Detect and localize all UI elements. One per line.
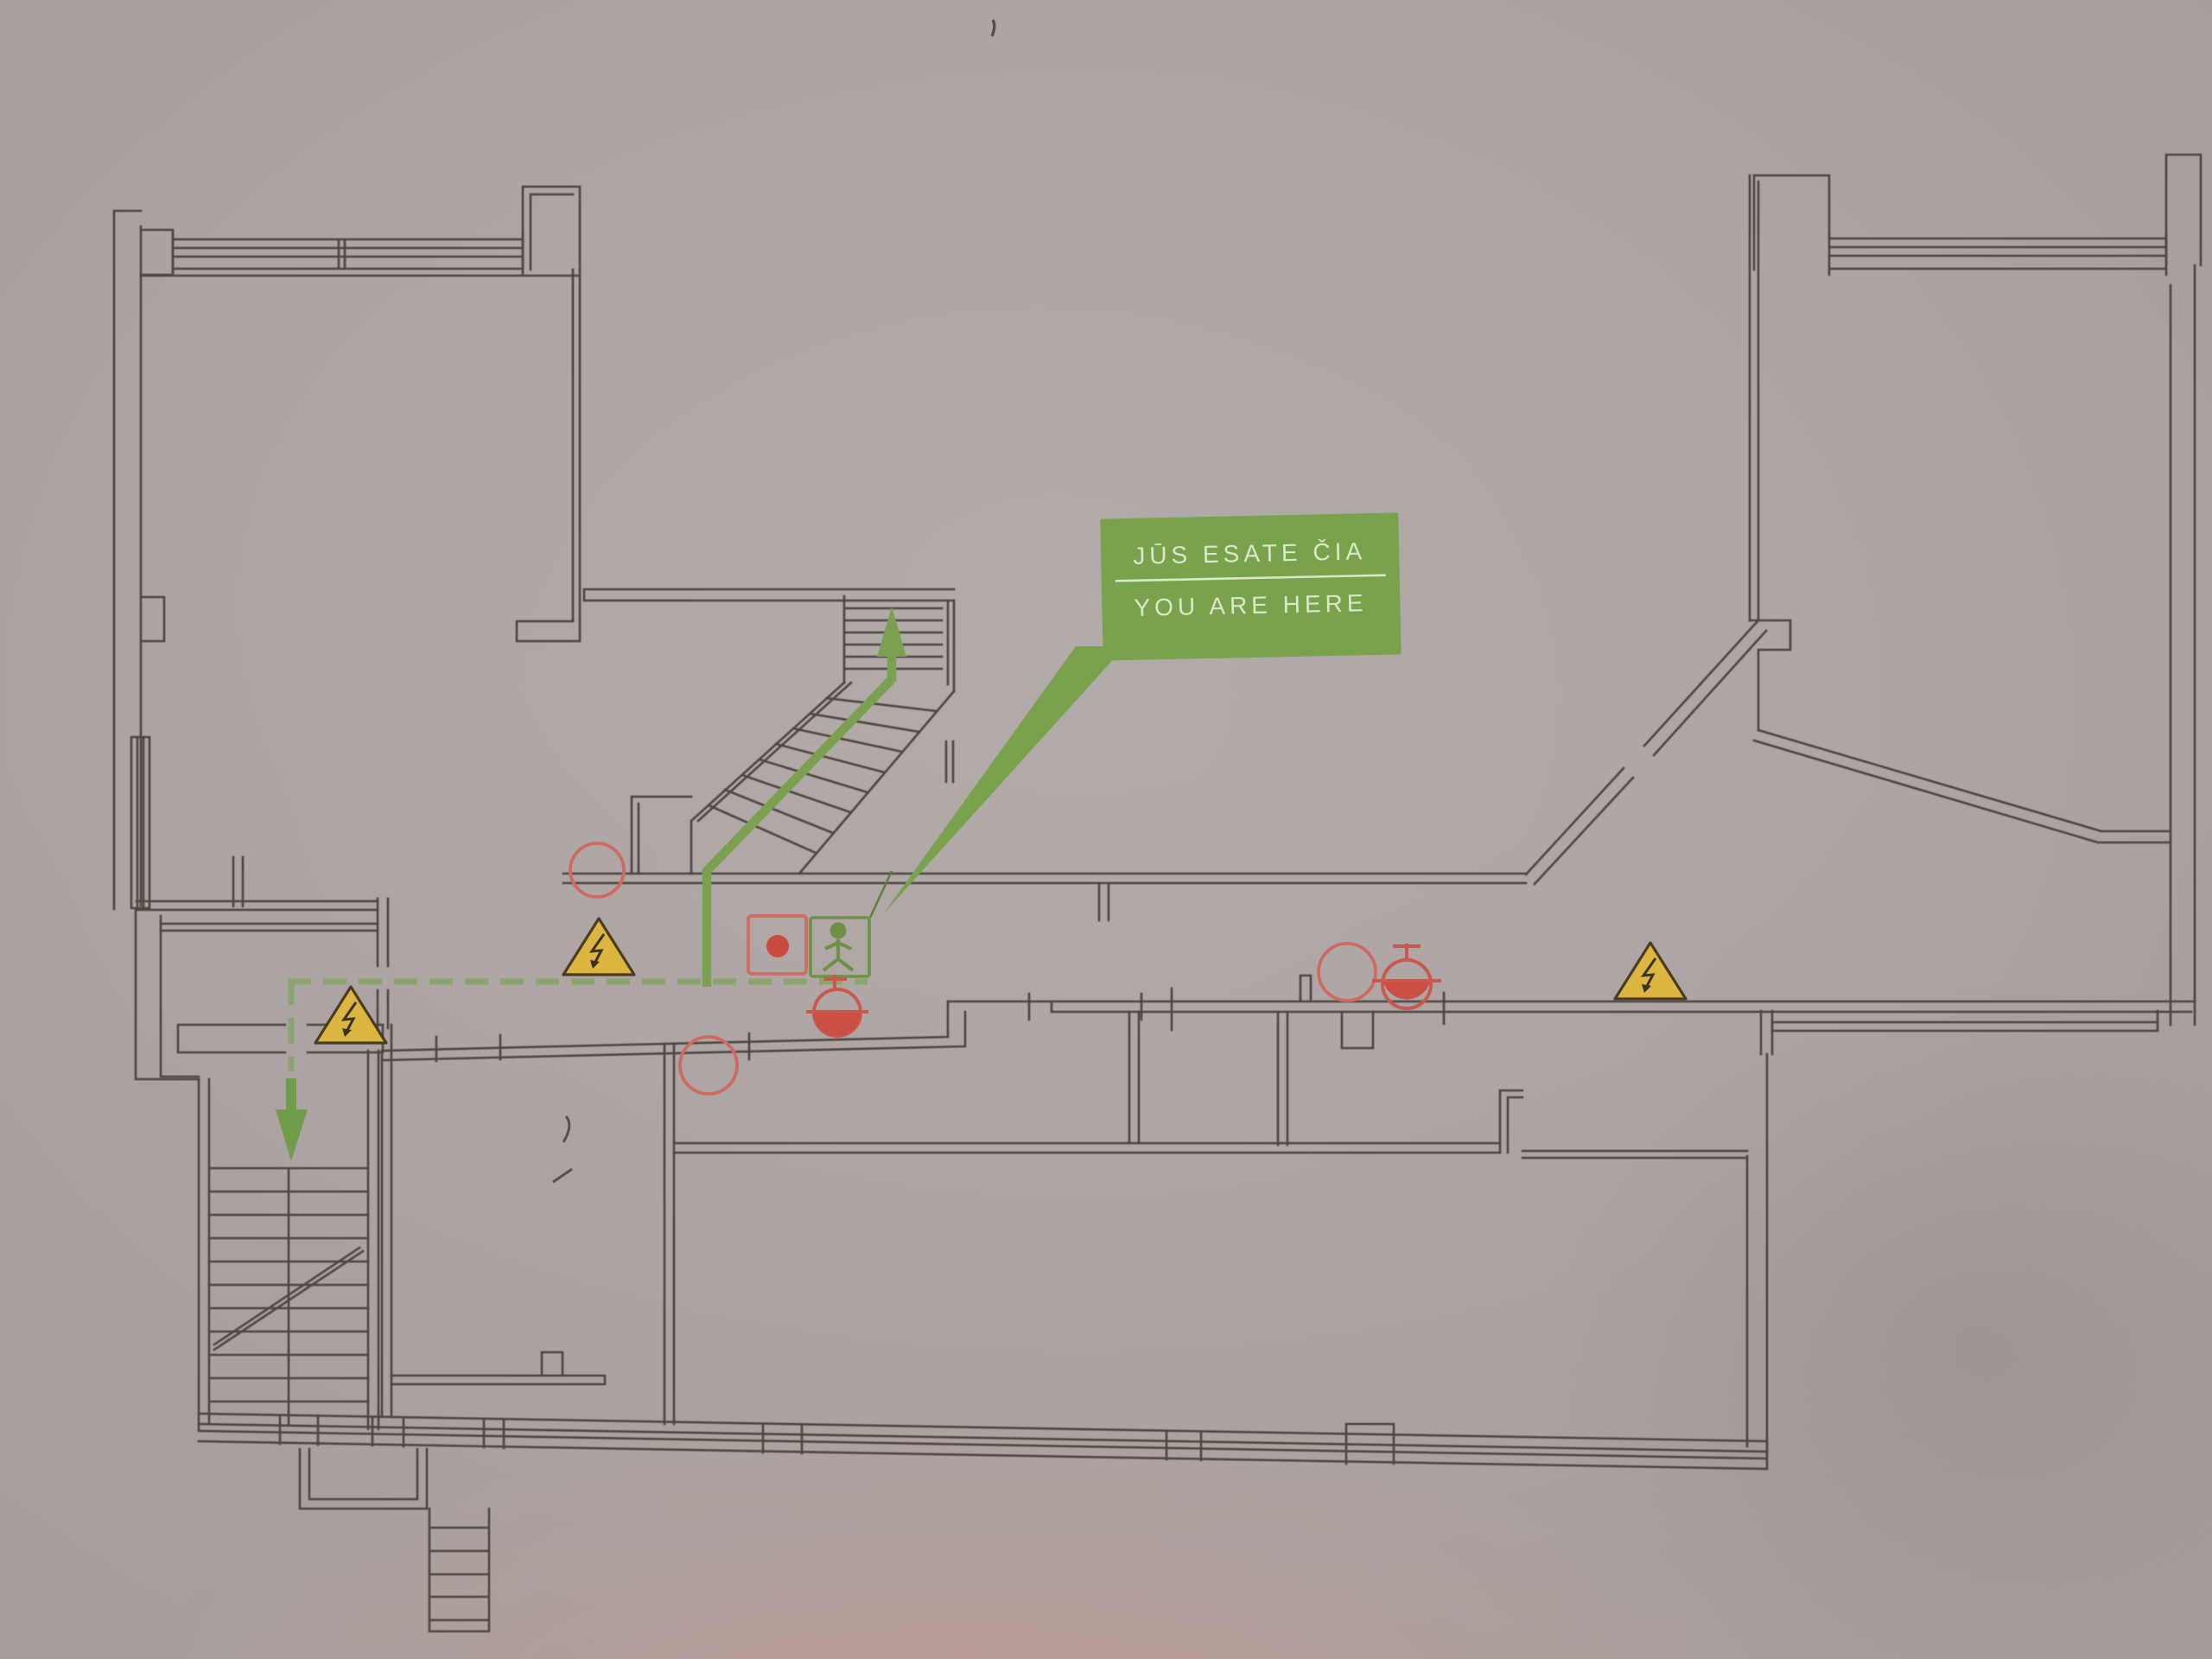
svg-text:JŪS ESATE ČIA: JŪS ESATE ČIA [1133, 537, 1366, 569]
svg-text:YOU ARE HERE: YOU ARE HERE [1134, 589, 1368, 621]
